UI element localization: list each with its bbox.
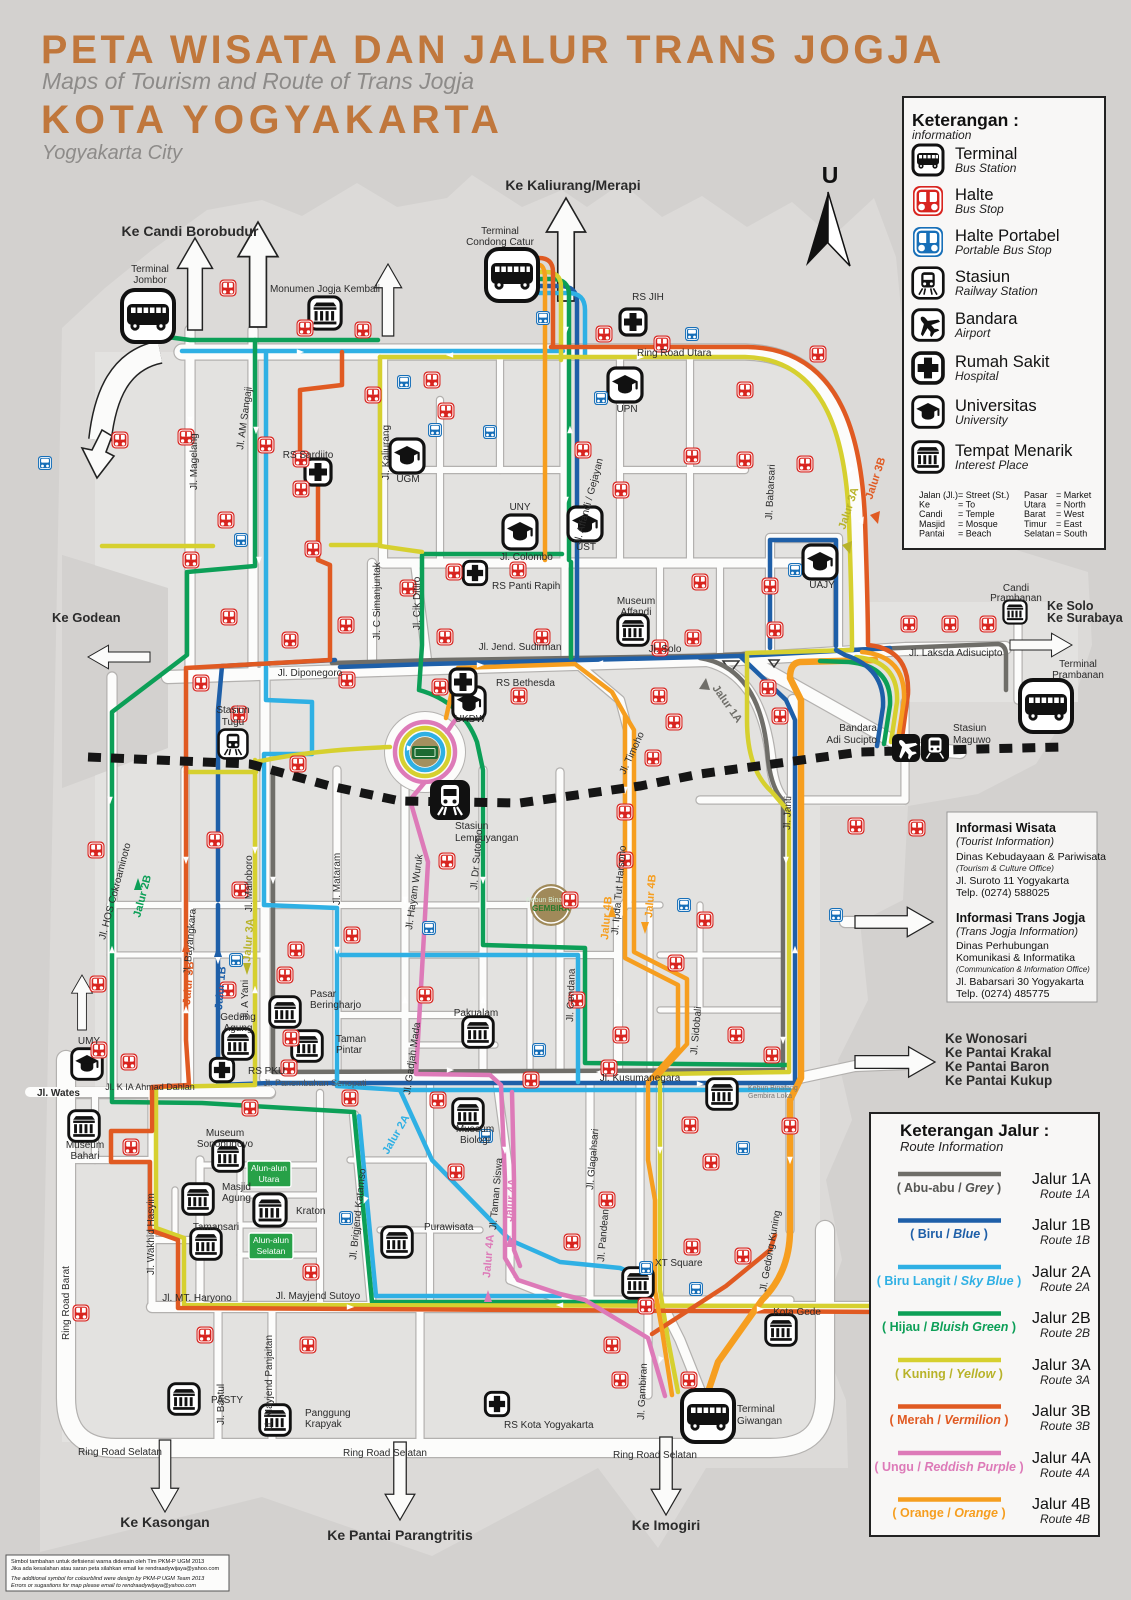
svg-text:Pantai: Pantai: [919, 529, 945, 539]
svg-text:Jl. Colombo: Jl. Colombo: [500, 552, 553, 563]
svg-text:( Merah / Vermilion ): ( Merah / Vermilion ): [889, 1413, 1008, 1427]
svg-text:Purawisata: Purawisata: [424, 1222, 474, 1233]
svg-text:Portable Bus Stop: Portable Bus Stop: [955, 243, 1052, 257]
svg-text:RS PKU: RS PKU: [248, 1066, 285, 1077]
svg-text:Barat: Barat: [1024, 509, 1046, 519]
svg-text:Simbol tambahan untuk defisien: Simbol tambahan untuk defisiensi warna d…: [11, 1559, 204, 1565]
svg-text:Terminal: Terminal: [737, 1404, 775, 1415]
svg-text:= Street (St.): = Street (St.): [958, 490, 1009, 500]
svg-text:Selatan: Selatan: [1024, 529, 1055, 539]
svg-text:Jl. Mayjend Sutoyo: Jl. Mayjend Sutoyo: [276, 1291, 361, 1302]
svg-text:Jl. Magelang: Jl. Magelang: [189, 433, 200, 490]
svg-text:( Biru Langit / Sky Blue ): ( Biru Langit / Sky Blue ): [877, 1274, 1021, 1288]
svg-text:Jl. Laksda Adisucipto: Jl. Laksda Adisucipto: [909, 648, 1003, 659]
svg-text:Route 2A: Route 2A: [1040, 1280, 1090, 1294]
svg-text:Jl. Bantul: Jl. Bantul: [216, 1384, 227, 1425]
svg-text:Bandara: Bandara: [839, 723, 877, 734]
svg-text:UNY: UNY: [509, 502, 530, 513]
svg-text:Jl. C Simanjuntak: Jl. C Simanjuntak: [372, 561, 383, 640]
svg-text:Ke Kaliurang/Merapi: Ke Kaliurang/Merapi: [505, 177, 640, 193]
svg-text:Jl. Kaliurang: Jl. Kaliurang: [381, 425, 392, 480]
svg-text:Jalur 4B: Jalur 4B: [1032, 1496, 1091, 1513]
svg-text:Airport: Airport: [954, 326, 991, 340]
svg-text:= Mosque: = Mosque: [958, 519, 998, 529]
svg-text:UAJY: UAJY: [809, 580, 835, 591]
svg-text:Condong Catur: Condong Catur: [466, 237, 534, 248]
svg-text:U: U: [822, 162, 839, 188]
svg-text:Jl. Malioboro: Jl. Malioboro: [244, 855, 255, 912]
svg-text:Ke Imogiri: Ke Imogiri: [632, 1517, 700, 1533]
svg-text:KOTA YOGYAKARTA: KOTA YOGYAKARTA: [41, 98, 504, 142]
svg-text:Pasar: Pasar: [310, 989, 337, 1000]
svg-text:Ring Road Selatan: Ring Road Selatan: [613, 1450, 697, 1461]
svg-text:Ring Road Selatan: Ring Road Selatan: [78, 1447, 162, 1458]
svg-text:(Tourism & Culture Office): (Tourism & Culture Office): [956, 863, 1054, 873]
svg-text:RS Kota Yogyakarta: RS Kota Yogyakarta: [504, 1420, 594, 1431]
svg-text:Utara: Utara: [1024, 500, 1046, 510]
svg-text:Adi Sucipto: Adi Sucipto: [826, 735, 877, 746]
svg-text:= North: = North: [1056, 500, 1086, 510]
svg-text:Agung: Agung: [224, 1023, 253, 1034]
svg-text:University: University: [955, 413, 1009, 427]
svg-text:Ke Candi Borobudur: Ke Candi Borobudur: [122, 223, 259, 239]
svg-text:Krapyak: Krapyak: [305, 1419, 343, 1430]
svg-text:Jalur 4A: Jalur 4A: [1032, 1450, 1091, 1467]
svg-text:Pasar: Pasar: [1024, 490, 1048, 500]
svg-text:Route 2B: Route 2B: [1040, 1326, 1090, 1340]
svg-text:RS Sardjito: RS Sardjito: [283, 450, 334, 461]
svg-text:Komunikasi & Informatika: Komunikasi & Informatika: [956, 952, 1075, 964]
svg-text:Prambanan: Prambanan: [990, 593, 1042, 604]
svg-text:RS JIH: RS JIH: [632, 292, 664, 303]
svg-text:Informasi Wisata: Informasi Wisata: [956, 821, 1057, 835]
svg-text:Museum: Museum: [456, 1124, 494, 1135]
svg-text:Terminal: Terminal: [1059, 659, 1097, 670]
svg-text:Route 3A: Route 3A: [1040, 1373, 1090, 1387]
svg-text:Interest Place: Interest Place: [955, 458, 1029, 472]
svg-text:(Communication & Information O: (Communication & Information Office): [956, 965, 1090, 974]
svg-text:Timur: Timur: [1024, 519, 1047, 529]
svg-text:Route Information: Route Information: [900, 1139, 1003, 1154]
svg-text:Taman: Taman: [336, 1034, 366, 1045]
svg-text:Museum: Museum: [206, 1128, 244, 1139]
svg-text:Dinas Perhubungan: Dinas Perhubungan: [956, 940, 1049, 952]
svg-text:Route 4B: Route 4B: [1040, 1512, 1090, 1526]
svg-text:Jalur 2B: Jalur 2B: [1032, 1310, 1091, 1327]
svg-text:= West: = West: [1056, 509, 1085, 519]
svg-text:Jl. Solo: Jl. Solo: [649, 644, 682, 655]
svg-text:Ke Wonosari: Ke Wonosari: [945, 1031, 1027, 1046]
svg-text:Errors or sugastions for map p: Errors or sugastions for map please emai…: [11, 1583, 196, 1589]
svg-text:Jalur 2A: Jalur 2A: [1032, 1264, 1091, 1281]
svg-text:Tamansari: Tamansari: [193, 1222, 239, 1233]
svg-text:UGM: UGM: [396, 474, 419, 485]
svg-text:Dinas Kebudayaan & Pariwisata: Dinas Kebudayaan & Pariwisata: [956, 851, 1106, 863]
svg-text:Affandi: Affandi: [621, 607, 652, 618]
svg-text:( Biru / Blue ): ( Biru / Blue ): [910, 1227, 988, 1241]
svg-text:Jalur 3A: Jalur 3A: [1032, 1357, 1091, 1374]
svg-text:UMY: UMY: [78, 1036, 101, 1047]
svg-text:Maguwo: Maguwo: [953, 735, 991, 746]
svg-text:Yogyakarta City: Yogyakarta City: [42, 142, 183, 164]
svg-text:Ke Pantai Kukup: Ke Pantai Kukup: [945, 1073, 1052, 1088]
svg-text:Jl. K IA Ahmad Dahlan: Jl. K IA Ahmad Dahlan: [105, 1082, 195, 1092]
svg-text:Jalur 3B: Jalur 3B: [1032, 1403, 1091, 1420]
svg-text:Biologi: Biologi: [460, 1135, 490, 1146]
svg-text:Jl. A Yani: Jl. A Yani: [240, 980, 251, 1020]
svg-text:(Trans Jogja Information): (Trans Jogja Information): [956, 926, 1078, 938]
svg-text:Route 4A: Route 4A: [1040, 1466, 1090, 1480]
svg-text:Jalan (Jl.): Jalan (Jl.): [919, 490, 958, 500]
svg-text:Maps of Tourism and Route of T: Maps of Tourism and Route of Trans Jogja: [42, 68, 474, 94]
svg-text:Kota Gede: Kota Gede: [773, 1307, 821, 1318]
svg-text:Alun-alun: Alun-alun: [251, 1163, 287, 1173]
svg-text:Jl. Panembahan Senopati: Jl. Panembahan Senopati: [263, 1078, 366, 1088]
svg-text:Jl. Babarsari 30 Yogyakarta: Jl. Babarsari 30 Yogyakarta: [956, 976, 1084, 988]
svg-text:Bus Station: Bus Station: [955, 161, 1017, 175]
svg-text:Route 3B: Route 3B: [1040, 1419, 1090, 1433]
svg-text:RS Panti Rapih: RS Panti Rapih: [492, 581, 560, 592]
svg-text:Jl. MT. Haryono: Jl. MT. Haryono: [162, 1293, 232, 1304]
svg-text:Utara: Utara: [259, 1174, 280, 1184]
svg-text:The additional symbol for colo: The additional symbol for colourblind we…: [11, 1576, 205, 1582]
svg-text:PETA WISATA DAN JALUR TRANS JO: PETA WISATA DAN JALUR TRANS JOGJA: [41, 28, 945, 72]
svg-text:Ke Kasongan: Ke Kasongan: [120, 1514, 209, 1530]
svg-text:Alun-alun: Alun-alun: [253, 1235, 289, 1245]
svg-text:= To: = To: [958, 500, 975, 510]
svg-text:Jl. Mayjend Panjaitan: Jl. Mayjend Panjaitan: [264, 1335, 275, 1430]
svg-text:Pakualam: Pakualam: [454, 1008, 498, 1019]
svg-text:Jalur 1B: Jalur 1B: [1032, 1217, 1091, 1234]
svg-text:Kebun Binatang: Kebun Binatang: [748, 1085, 798, 1092]
svg-text:Jl. Mataram: Jl. Mataram: [332, 853, 343, 905]
svg-text:Sonobudoyo: Sonobudoyo: [197, 1139, 254, 1150]
svg-text:( Kuning / Yellow ): ( Kuning / Yellow ): [895, 1367, 1003, 1381]
svg-text:Jl. Diponegoro: Jl. Diponegoro: [278, 668, 343, 679]
svg-text:Masjid: Masjid: [222, 1182, 251, 1193]
svg-text:Ke Pantai Parangtritis: Ke Pantai Parangtritis: [327, 1527, 473, 1543]
svg-text:Ke Godean: Ke Godean: [52, 610, 121, 625]
svg-text:Route 1A: Route 1A: [1040, 1187, 1090, 1201]
svg-text:information: information: [912, 128, 972, 142]
svg-text:Stasiun: Stasiun: [953, 723, 986, 734]
svg-text:Jl. Jend. Sudirman: Jl. Jend. Sudirman: [479, 642, 562, 653]
svg-text:Ring Road Utara: Ring Road Utara: [637, 348, 712, 359]
svg-text:Jl. Kusumanegara: Jl. Kusumanegara: [600, 1073, 681, 1084]
svg-text:Ring Road Barat: Ring Road Barat: [61, 1266, 72, 1340]
svg-text:Terminal: Terminal: [481, 226, 519, 237]
svg-text:Jl. Wakhid Hasyim: Jl. Wakhid Hasyim: [146, 1193, 157, 1275]
svg-text:( Ungu / Reddish Purple ): ( Ungu / Reddish Purple ): [874, 1460, 1023, 1474]
svg-text:UPN: UPN: [616, 404, 637, 415]
svg-text:Ke Pantai Baron: Ke Pantai Baron: [945, 1059, 1049, 1074]
svg-text:= Temple: = Temple: [958, 509, 995, 519]
svg-text:( Abu-abu / Grey ): ( Abu-abu / Grey ): [897, 1181, 1001, 1195]
svg-text:( Hijau / Bluish Green ): ( Hijau / Bluish Green ): [882, 1320, 1016, 1334]
svg-text:Jl. Cik Ditiro: Jl. Cik Ditiro: [412, 576, 423, 630]
svg-text:Masjid: Masjid: [919, 519, 945, 529]
svg-text:Terminal: Terminal: [131, 264, 169, 275]
svg-text:Tugu: Tugu: [222, 717, 244, 728]
svg-text:Jalur 1A: Jalur 1A: [1032, 1171, 1091, 1188]
svg-text:( Orange / Orange ): ( Orange / Orange ): [892, 1506, 1005, 1520]
svg-text:Ring Road Selatan: Ring Road Selatan: [343, 1448, 427, 1459]
svg-text:Stasiun: Stasiun: [216, 705, 249, 716]
svg-text:Hospital: Hospital: [955, 369, 999, 383]
svg-text:Keterangan :: Keterangan :: [912, 110, 1019, 130]
svg-text:Jika ada kesalahan atau saran: Jika ada kesalahan atau saran peta silah…: [11, 1566, 219, 1572]
svg-text:Pintar: Pintar: [336, 1045, 363, 1056]
svg-text:(Tourist Information): (Tourist Information): [956, 836, 1054, 848]
svg-text:Monumen Jogja Kembali: Monumen Jogja Kembali: [270, 284, 380, 295]
svg-text:= South: = South: [1056, 529, 1087, 539]
svg-text:Agung: Agung: [222, 1193, 251, 1204]
svg-text:Kraton: Kraton: [296, 1206, 325, 1217]
svg-text:Jl. Cendana: Jl. Cendana: [565, 968, 578, 1022]
svg-text:Museum: Museum: [66, 1140, 104, 1151]
svg-text:Giwangan: Giwangan: [737, 1416, 782, 1427]
svg-text:Museum: Museum: [617, 596, 655, 607]
svg-text:Bahari: Bahari: [71, 1151, 100, 1162]
svg-text:Candi: Candi: [919, 509, 943, 519]
svg-text:RS Bethesda: RS Bethesda: [496, 678, 555, 689]
svg-text:Ke: Ke: [919, 500, 930, 510]
svg-text:Jl. Janti: Jl. Janti: [782, 796, 794, 830]
svg-text:Route 1B: Route 1B: [1040, 1233, 1090, 1247]
svg-text:Selatan: Selatan: [257, 1246, 286, 1256]
svg-text:Telp. (0274) 588025: Telp. (0274) 588025: [956, 887, 1050, 899]
svg-text:Jombor: Jombor: [133, 275, 167, 286]
svg-text:Jl. Suroto 11 Yogyakarta: Jl. Suroto 11 Yogyakarta: [956, 875, 1069, 887]
svg-text:XT Square: XT Square: [655, 1258, 703, 1269]
svg-text:= East: = East: [1056, 519, 1082, 529]
svg-text:Bus Stop: Bus Stop: [955, 202, 1004, 216]
svg-text:Informasi Trans Jogja: Informasi Trans Jogja: [956, 911, 1086, 925]
svg-text:= Market: = Market: [1056, 490, 1092, 500]
svg-text:Ke Pantai Krakal: Ke Pantai Krakal: [945, 1045, 1052, 1060]
svg-text:= Beach: = Beach: [958, 529, 991, 539]
svg-text:Keterangan Jalur :: Keterangan Jalur :: [900, 1121, 1049, 1140]
svg-text:Prambanan: Prambanan: [1052, 670, 1104, 681]
svg-text:Telp. (0274) 485775: Telp. (0274) 485775: [956, 988, 1050, 1000]
svg-text:UKDW: UKDW: [455, 714, 486, 725]
svg-text:Beringharjo: Beringharjo: [310, 1000, 362, 1011]
svg-text:Ke Surabaya: Ke Surabaya: [1047, 611, 1124, 625]
svg-text:Gembira Loka: Gembira Loka: [748, 1093, 792, 1100]
svg-text:Jl. Wates: Jl. Wates: [37, 1088, 80, 1099]
svg-text:Railway Station: Railway Station: [955, 284, 1038, 298]
svg-text:Lempuyangan: Lempuyangan: [455, 833, 518, 844]
svg-text:Panggung: Panggung: [305, 1408, 351, 1419]
